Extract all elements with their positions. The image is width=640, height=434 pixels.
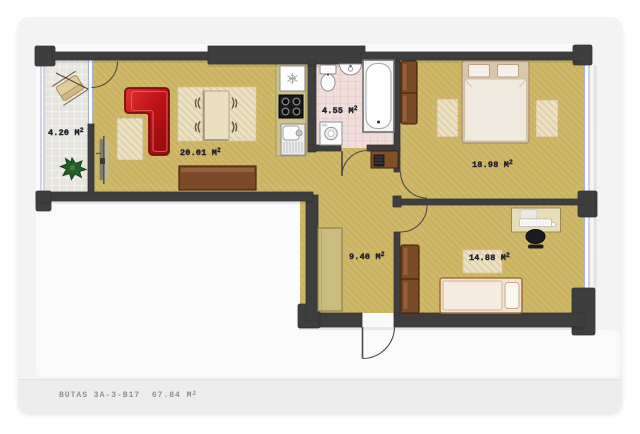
svg-text:20.01 M2: 20.01 M2 bbox=[180, 147, 221, 158]
svg-text:4.55 M2: 4.55 M2 bbox=[322, 105, 358, 116]
svg-text:9.40 M2: 9.40 M2 bbox=[349, 251, 385, 262]
svg-text:4.20 M2: 4.20 M2 bbox=[48, 127, 84, 138]
svg-text:18.98 M2: 18.98 M2 bbox=[472, 159, 513, 170]
svg-text:14.88 M2: 14.88 M2 bbox=[469, 252, 510, 263]
